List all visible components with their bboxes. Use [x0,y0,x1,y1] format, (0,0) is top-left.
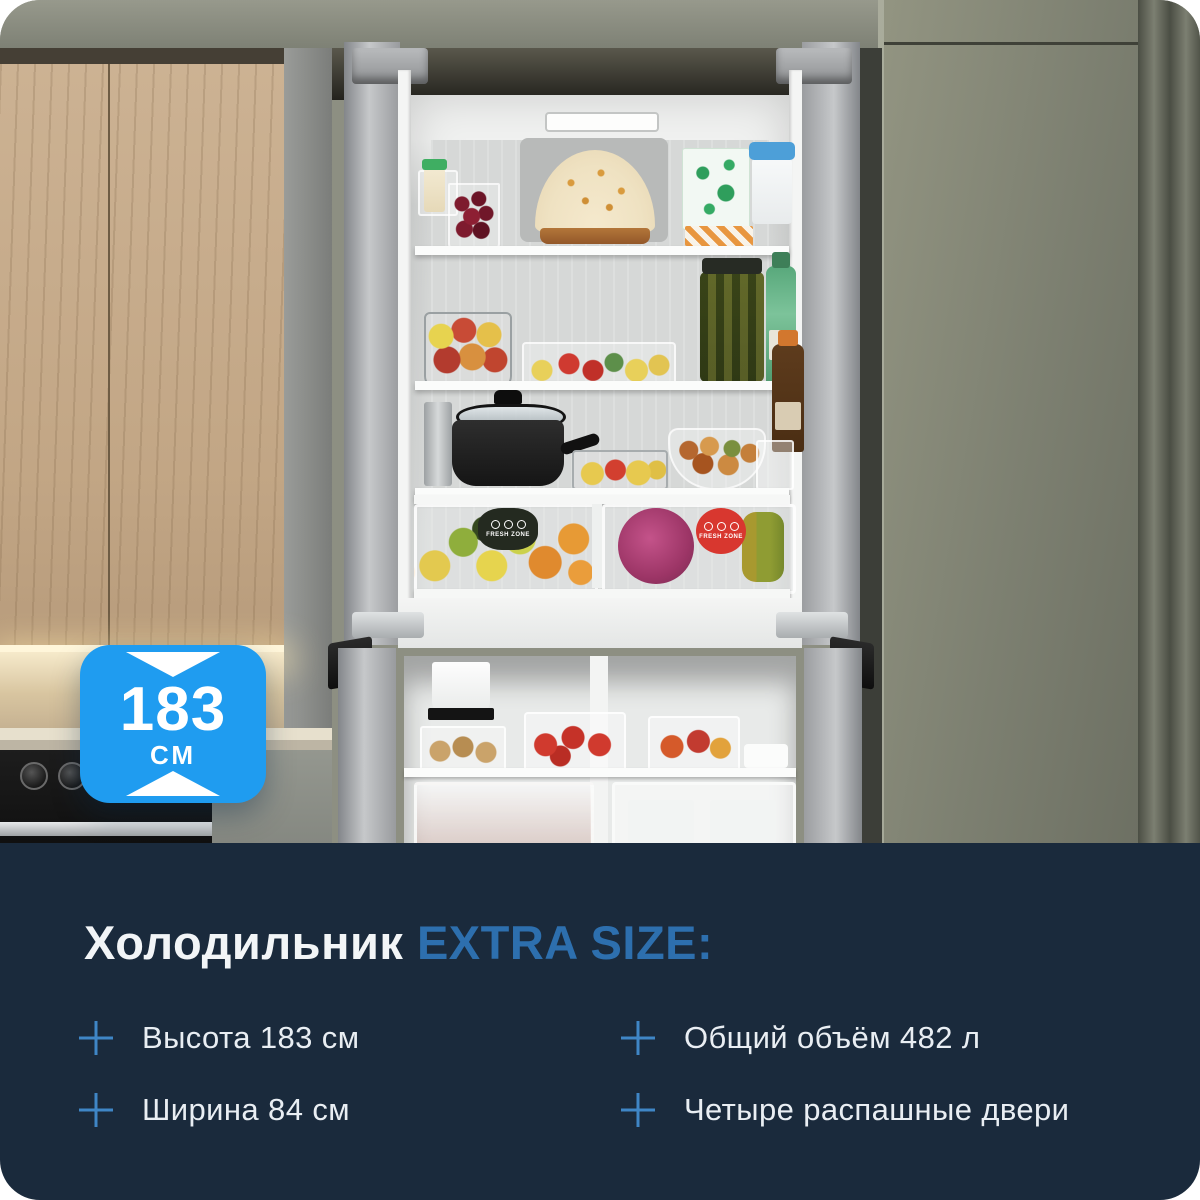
red-cabbage [618,508,694,584]
fresh-zone-text: FRESH ZONE [699,534,743,540]
green-patterned-box [682,148,750,230]
fridge-side-gap [860,48,882,843]
freezer-drawer-left [414,782,594,849]
freezer-door-left [338,648,396,843]
green-bottle-cap [772,252,790,268]
filler-wall [284,48,332,843]
feature-label: Ширина 84 см [142,1092,350,1128]
mushroom-container [420,726,506,772]
fridge-door-upper-right [802,42,860,645]
cabinet-seam [884,42,1138,45]
strawberry-container [524,712,626,772]
fresh-zone-label-right: FRESH ZONE [696,508,746,554]
wood-cabinet [0,64,332,646]
wood-cabinet-seam [108,64,110,646]
fruit-basket [424,312,512,390]
plus-icon [620,1020,656,1056]
timer-icon [517,520,526,529]
yogurt-bottle [424,168,445,212]
fridge-ceiling-light [545,112,659,132]
feature-label: Четыре распашные двери [684,1092,1069,1128]
height-value: 183 [120,679,226,741]
cake-base [540,228,650,244]
title-product: Холодильник [84,916,403,969]
fruit-container [648,716,740,772]
freezer-tub [710,800,776,843]
plus-icon [620,1092,656,1128]
feature-label: Высота 183 см [142,1020,359,1056]
cabinet-shadow-strip [0,48,332,64]
tall-cabinet-right [878,0,1138,843]
freezer-shelf [404,768,796,777]
bell-pepper [742,512,784,582]
height-badge: 183 см [80,645,266,803]
feature-label: Общий объём 482 л [684,1020,980,1056]
door-liner-left [398,70,411,645]
drawer-divider [592,504,602,588]
blue-jar-lid [749,142,795,160]
door-container [756,440,794,490]
pickle-jar-lid [702,258,762,274]
leaf-icon [491,520,500,529]
glass-shelf [415,246,789,255]
brown-bottle [772,344,804,452]
drawer-rail [414,495,790,504]
steel-canister [424,402,452,486]
height-arrow-bottom-icon [126,771,220,796]
black-pot [452,420,564,486]
freezer-tub [628,800,694,843]
striped-box [685,226,753,246]
fluted-column [1138,0,1200,843]
fridge-door-upper-left [344,42,400,645]
pot-lid-knob [494,390,522,404]
pickle-jar [700,272,764,382]
mid-hinge-right [776,612,848,638]
white-jar [752,158,792,224]
fresh-zone-icons [704,522,739,531]
title-accent: EXTRA SIZE: [417,916,713,969]
oven-knob [20,762,48,790]
timer-icon [730,522,739,531]
drawer-rail [414,589,790,598]
oven-handle [0,822,212,836]
mid-hinge-left [352,612,424,638]
feature-doors: Четыре распашные двери [620,1088,1069,1132]
pear-basket [572,450,668,490]
plus-icon [78,1092,114,1128]
leaf-icon [704,522,713,531]
height-unit: см [150,742,196,768]
fresh-zone-icons [491,520,526,529]
feature-height: Высота 183 см [78,1016,359,1060]
freezer-door-right [804,648,862,843]
glass-shelf [415,381,789,390]
brown-bottle-cap [778,330,798,346]
feature-volume: Общий объём 482 л [620,1016,980,1060]
door-hinge-top-left [352,48,428,84]
height-arrow-top-icon [126,652,220,677]
product-card: FRESH ZONE FRESH ZONE [0,0,1200,1200]
ice-bucket-base [428,708,494,720]
fresh-zone-text: FRESH ZONE [486,532,530,538]
yogurt-cap [422,159,447,170]
humidity-icon [717,522,726,531]
humidity-icon [504,520,513,529]
compartment-divider [398,598,802,648]
page-title: Холодильник EXTRA SIZE: [84,915,713,970]
info-panel: Холодильник EXTRA SIZE: Высота 183 см Ши… [0,843,1200,1200]
kitchen-photo: FRESH ZONE FRESH ZONE [0,0,1200,843]
ice-tray [744,744,788,768]
upper-cabinet-band [0,0,878,48]
brown-bottle-label [775,402,801,430]
plus-icon [78,1020,114,1056]
feature-width: Ширина 84 см [78,1088,350,1132]
cherries-glass [448,183,500,250]
ice-bucket [432,662,490,712]
door-hinge-top-right [776,48,852,84]
fresh-zone-label-left: FRESH ZONE [478,508,538,550]
